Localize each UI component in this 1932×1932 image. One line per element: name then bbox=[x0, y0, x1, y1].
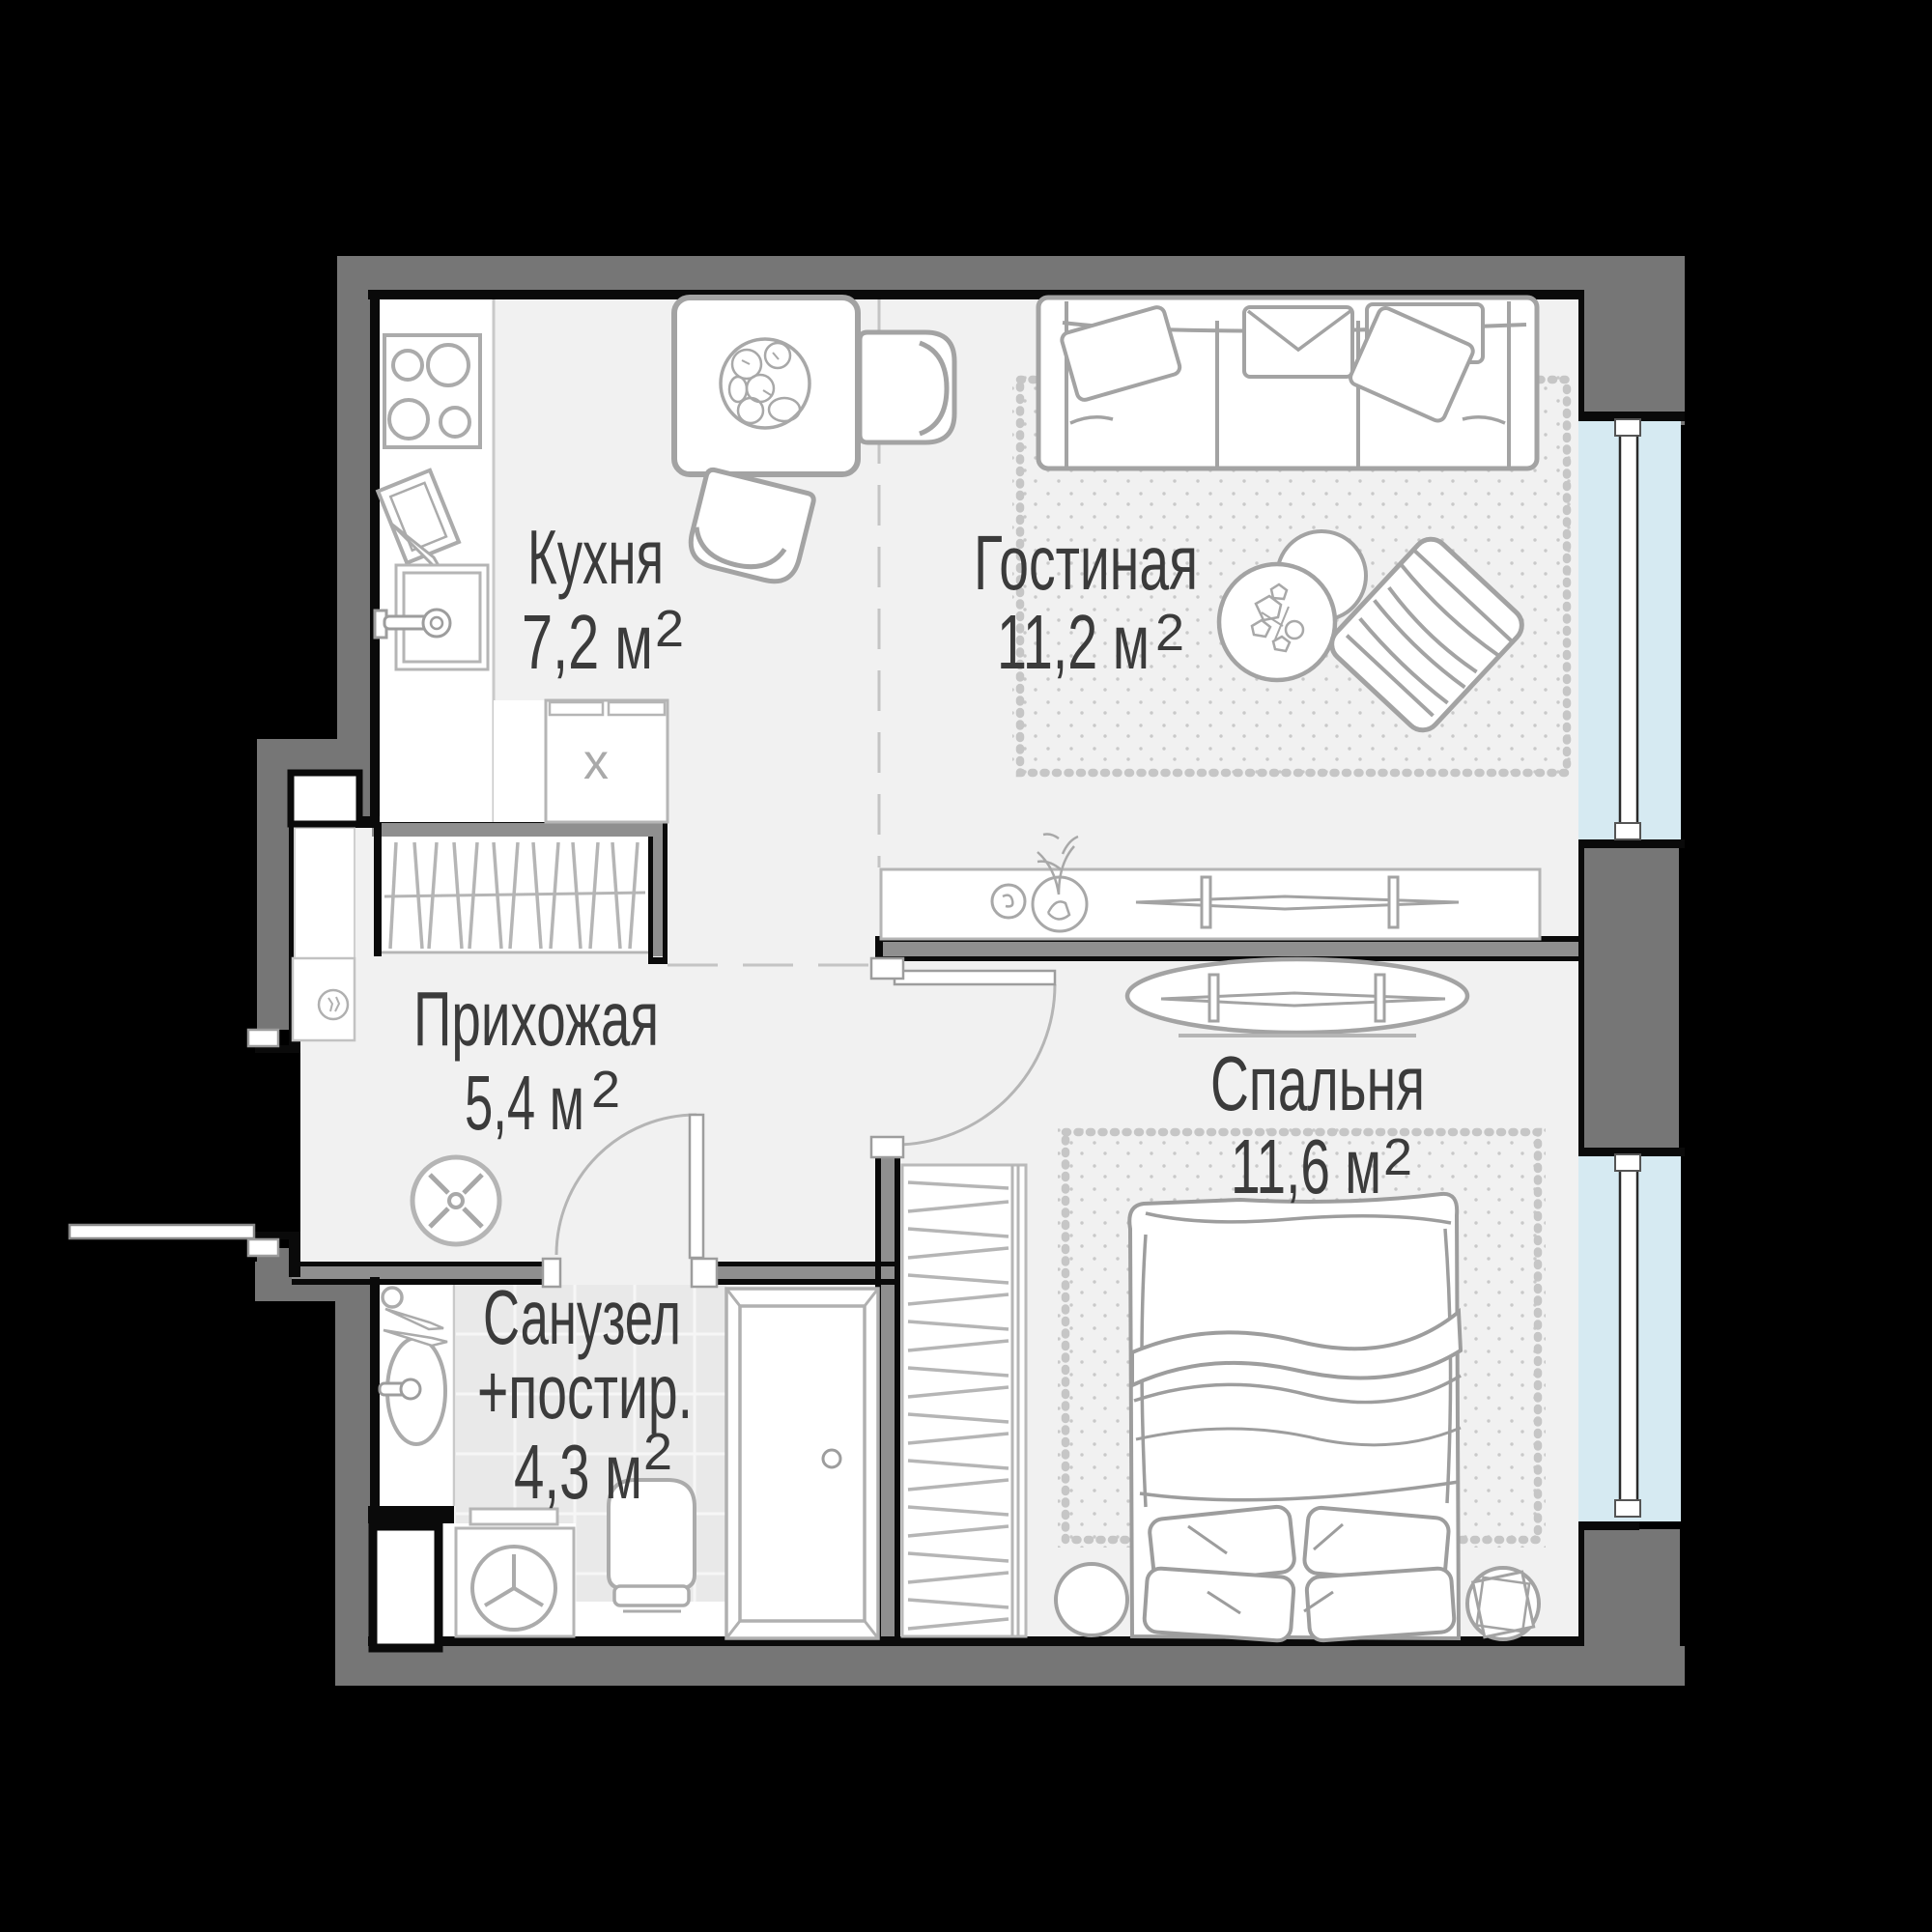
svg-text:11,2 м: 11,2 м bbox=[997, 599, 1150, 685]
svg-text:Спальня: Спальня bbox=[1210, 1040, 1425, 1126]
svg-text:2: 2 bbox=[1383, 1128, 1412, 1186]
svg-text:Прихожая: Прихожая bbox=[413, 976, 659, 1062]
svg-text:Кухня: Кухня bbox=[527, 514, 664, 600]
svg-text:x: x bbox=[583, 734, 609, 790]
svg-text:Санузел: Санузел bbox=[483, 1274, 681, 1360]
svg-text:2: 2 bbox=[591, 1061, 620, 1119]
svg-text:2: 2 bbox=[643, 1423, 672, 1481]
svg-text:5,4 м: 5,4 м bbox=[465, 1060, 584, 1146]
svg-text:+постир.: +постир. bbox=[477, 1349, 693, 1435]
svg-text:2: 2 bbox=[1155, 604, 1184, 662]
svg-text:7,2 м: 7,2 м bbox=[522, 599, 653, 685]
svg-text:11,6 м: 11,6 м bbox=[1231, 1123, 1381, 1209]
svg-text:2: 2 bbox=[655, 600, 684, 658]
svg-text:4,3 м: 4,3 м bbox=[514, 1429, 642, 1515]
svg-text:Гостиная: Гостиная bbox=[974, 520, 1198, 606]
